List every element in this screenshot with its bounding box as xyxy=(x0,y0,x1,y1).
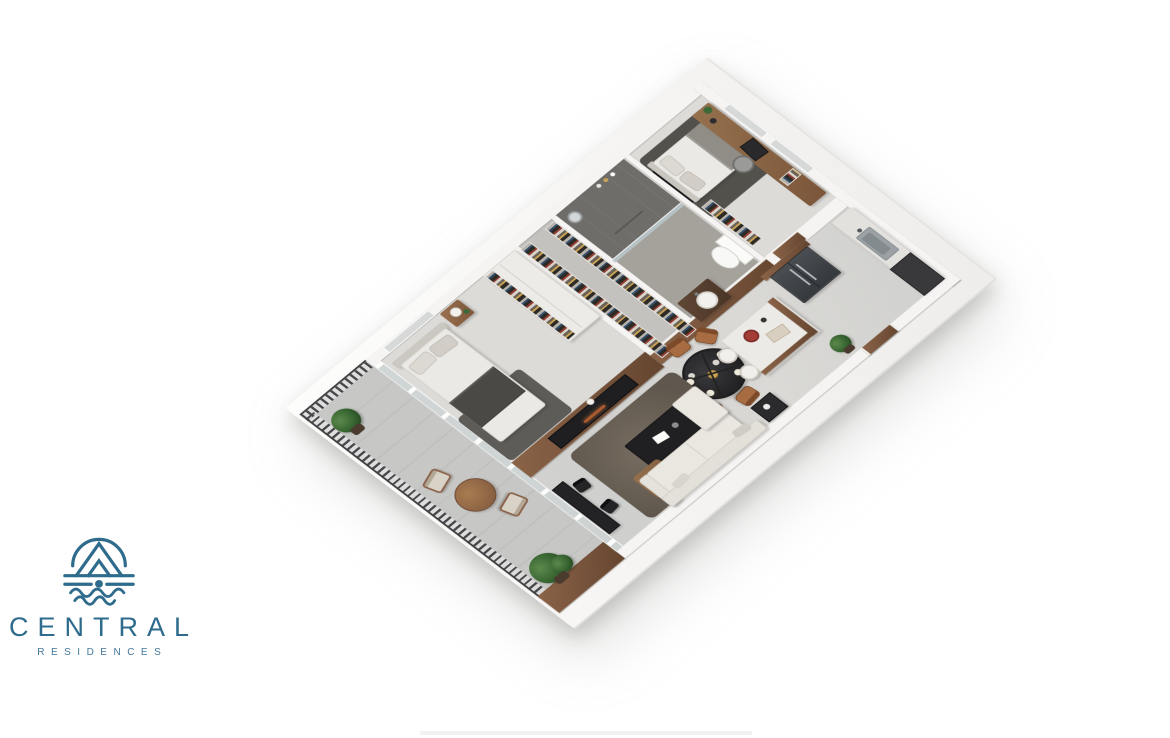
brand-subtitle: RESIDENCES xyxy=(0,648,206,658)
page-canvas: CENTRAL RESIDENCES xyxy=(0,0,1170,738)
brand-logo: CENTRAL RESIDENCES xyxy=(0,533,206,658)
brand-name: CENTRAL xyxy=(0,614,206,641)
bottom-edge-artifact xyxy=(420,731,752,735)
apartment-plan xyxy=(299,81,960,613)
brand-mark-icon xyxy=(56,533,142,607)
